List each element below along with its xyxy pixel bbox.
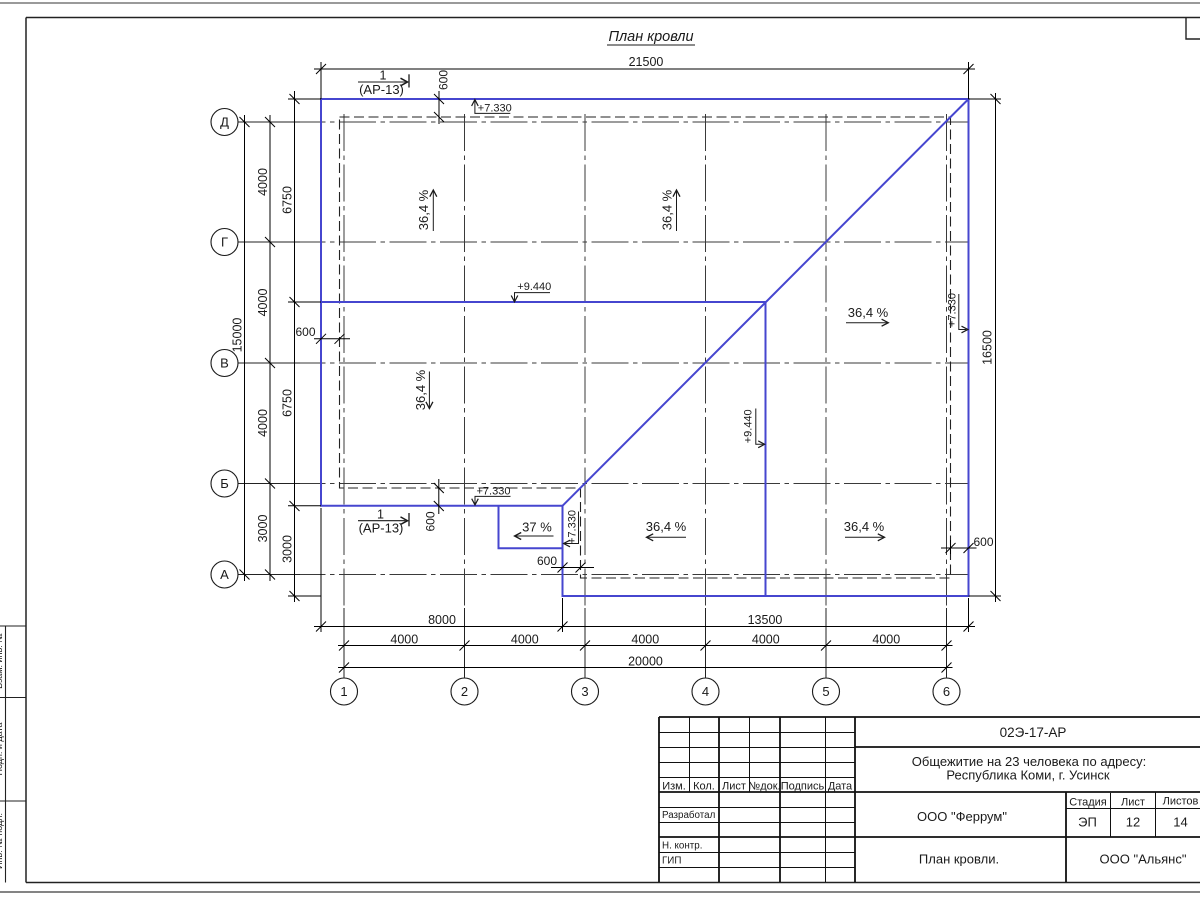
svg-text:Подпись: Подпись [781, 781, 825, 793]
svg-text:12: 12 [1126, 815, 1140, 830]
svg-text:600: 600 [424, 511, 438, 531]
svg-text:36,4 %: 36,4 % [416, 189, 431, 230]
svg-text:Д: Д [220, 115, 229, 130]
svg-text:4000: 4000 [256, 409, 270, 437]
svg-text:8000: 8000 [428, 613, 456, 627]
svg-text:36,4 %: 36,4 % [660, 189, 675, 230]
svg-text:1: 1 [340, 684, 347, 699]
svg-text:Республика Коми, г. Усинск: Республика Коми, г. Усинск [946, 768, 1109, 783]
svg-text:+7.330: +7.330 [567, 510, 579, 544]
svg-text:36,4 %: 36,4 % [844, 519, 885, 534]
svg-text:16500: 16500 [981, 330, 995, 365]
svg-text:Дата: Дата [828, 781, 853, 793]
svg-text:5: 5 [822, 684, 829, 699]
svg-text:+9.440: +9.440 [743, 409, 755, 443]
svg-text:А: А [220, 567, 229, 582]
svg-text:4000: 4000 [256, 168, 270, 196]
svg-text:+7.330: +7.330 [947, 293, 959, 327]
svg-text:4000: 4000 [752, 633, 780, 647]
svg-text:4000: 4000 [390, 633, 418, 647]
svg-text:(АР-13): (АР-13) [359, 82, 404, 97]
svg-text:+7.330: +7.330 [478, 102, 512, 114]
svg-text:ГИП: ГИП [662, 856, 681, 867]
svg-text:13500: 13500 [748, 613, 783, 627]
svg-text:Лист: Лист [1121, 797, 1145, 809]
svg-text:600: 600 [437, 70, 451, 90]
svg-text:02Э-17-АР: 02Э-17-АР [1000, 725, 1067, 740]
svg-text:Листов: Листов [1163, 796, 1199, 808]
svg-text:ЭП: ЭП [1078, 815, 1097, 830]
svg-text:36,4 %: 36,4 % [413, 369, 428, 410]
svg-text:(АР-13): (АР-13) [359, 521, 404, 536]
svg-text:Н. контр.: Н. контр. [662, 841, 702, 852]
svg-text:Г: Г [221, 235, 228, 250]
svg-text:36,4 %: 36,4 % [848, 305, 889, 320]
svg-text:3: 3 [581, 684, 588, 699]
svg-text:1: 1 [380, 69, 387, 83]
svg-text:21500: 21500 [629, 55, 664, 69]
svg-text:В: В [220, 356, 229, 371]
svg-text:Кол.: Кол. [693, 781, 715, 793]
svg-text:600: 600 [537, 554, 557, 568]
svg-text:3000: 3000 [281, 535, 295, 563]
svg-text:4000: 4000 [256, 289, 270, 317]
svg-text:4: 4 [702, 684, 709, 699]
svg-text:№док.: №док. [748, 781, 780, 793]
svg-text:+7.330: +7.330 [477, 486, 511, 498]
svg-text:2: 2 [461, 684, 468, 699]
svg-text:15000: 15000 [231, 318, 245, 353]
svg-text:План кровли.: План кровли. [919, 852, 999, 867]
svg-text:4000: 4000 [511, 633, 539, 647]
svg-text:Изм.: Изм. [662, 781, 686, 793]
svg-text:6750: 6750 [281, 389, 295, 417]
svg-text:ООО "Альянс": ООО "Альянс" [1100, 852, 1187, 867]
svg-text:3000: 3000 [256, 515, 270, 543]
svg-text:4000: 4000 [631, 633, 659, 647]
svg-text:6750: 6750 [281, 186, 295, 214]
svg-text:Разработал: Разработал [662, 810, 716, 821]
svg-text:Подп. и дата: Подп. и дата [0, 722, 4, 775]
svg-text:+9.440: +9.440 [517, 281, 551, 293]
svg-text:20000: 20000 [628, 655, 663, 669]
svg-text:6: 6 [943, 684, 950, 699]
svg-text:Лист: Лист [722, 781, 746, 793]
svg-text:Взам. инв. №: Взам. инв. № [0, 633, 4, 689]
svg-text:Б: Б [220, 476, 229, 491]
svg-text:4000: 4000 [872, 633, 900, 647]
svg-text:ООО "Феррум": ООО "Феррум" [917, 809, 1007, 824]
svg-text:600: 600 [295, 325, 315, 339]
svg-text:Инв. № подл.: Инв. № подл. [0, 813, 4, 869]
svg-text:600: 600 [974, 535, 994, 549]
svg-text:План кровли: План кровли [608, 29, 693, 45]
svg-text:36,4 %: 36,4 % [646, 519, 687, 534]
svg-text:Стадия: Стадия [1069, 797, 1107, 809]
svg-text:14: 14 [1173, 815, 1187, 830]
svg-text:1: 1 [377, 508, 384, 522]
svg-text:37 %: 37 % [522, 520, 552, 535]
